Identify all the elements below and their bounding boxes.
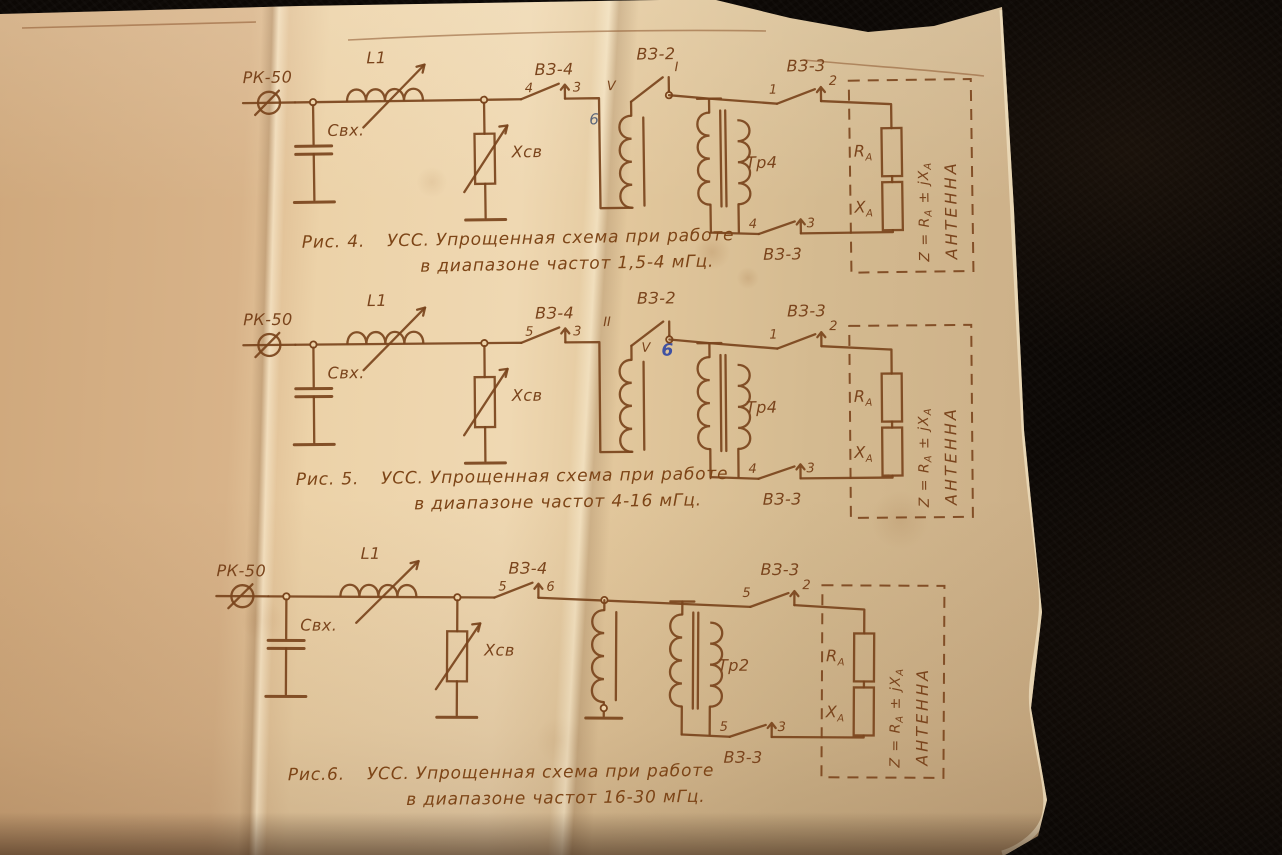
switch-vz2-to: V [641, 341, 651, 356]
inductor-l1: L1 [340, 544, 418, 623]
switch-vz3-top: ВЗ-3 5 2 [742, 560, 811, 607]
switch-vz3-top-label: ВЗ-3 [760, 560, 799, 579]
antenna-impedance-formula: Z = RА ± jХА [916, 162, 935, 263]
antenna-reactance-label: ХА [853, 197, 873, 219]
switch-vz4: ВЗ-4 5 6 [494, 559, 554, 598]
switch-vz3-bottom: 5 3 ВЗ-3 [719, 720, 786, 767]
switch-vz3-top: ВЗ-3 1 2 [769, 301, 838, 349]
switch-vz3-bottom-from: 4 [748, 462, 756, 477]
pencil-note: 6 [589, 110, 599, 128]
caption-fig6: Рис.6.УСС. Упрощенная схема при работе в… [288, 758, 715, 814]
switch-vz3-bottom-label: ВЗ-3 [763, 489, 802, 508]
input-capacitor-label: Свх. [300, 616, 337, 635]
switch-vz3-top-label: ВЗ-3 [786, 56, 825, 76]
caption-text: УСС. Упрощенная схема при работе [367, 761, 714, 785]
switch-vz3-top-from: 5 [742, 586, 750, 601]
caption-fig4: Рис. 4.УСС. Упрощенная схема при работе … [302, 222, 735, 282]
reactance-xsv: Хсв [436, 600, 515, 717]
input-capacitor: Свх. [266, 599, 338, 696]
switch-vz3-top-to: 2 [802, 578, 810, 593]
caption-fig5-line2: в диапазоне частот 4-16 мГц. [414, 487, 729, 517]
switch-vz2: ВЗ-2 II V 6 [603, 288, 677, 361]
antenna-box: RА ХА Z = RА ± jХА АНТЕННА [849, 79, 974, 273]
caption-text: УСС. Упрощенная схема при работе [387, 225, 735, 251]
switch-vz4: ВЗ-4 5 3 [521, 303, 582, 343]
reactance-label: Хсв [511, 386, 543, 405]
caption-text: УСС. Упрощенная схема при работе [381, 464, 728, 489]
rk50-connector: РК-50 [243, 310, 295, 357]
antenna-reactance-label: ХА [825, 702, 845, 724]
inductor-l1: L1 [346, 48, 425, 128]
figure-number: Рис.6. [288, 765, 345, 786]
inductor-label: L1 [367, 291, 387, 310]
connector-label: РК-50 [216, 561, 266, 580]
switch-vz4-label: ВЗ-4 [534, 60, 573, 80]
switch-vz4-to: 6 [546, 580, 554, 595]
switch-vz3-bottom-from: 5 [720, 720, 728, 735]
switch-vz2-from: V [607, 79, 617, 94]
rk50-connector: РК-50 [216, 561, 268, 608]
switch-vz3-bottom-to: 3 [807, 216, 815, 231]
folded-paper-sheet: РК-50 Свх. L1 [0, 0, 1282, 855]
transformer-label: Тр4 [746, 398, 778, 417]
matching-winding [586, 600, 623, 718]
reactance-label: Хсв [483, 640, 515, 659]
reactance-label: Хсв [511, 142, 543, 161]
caption-fig5: Рис. 5.УСС. Упрощенная схема при работе … [296, 461, 729, 519]
figure-number: Рис. 4. [302, 232, 366, 253]
switch-vz3-bottom-to: 3 [778, 720, 786, 735]
antenna-impedance-formula: Z = RА ± jХА [916, 407, 935, 508]
rk50-connector: РК-50 [243, 67, 296, 115]
switch-vz3-bottom: 4 3 ВЗ-3 [749, 216, 816, 264]
photo-of-schematic-page: РК-50 Свх. L1 [0, 0, 1282, 855]
transformer-label: Тр4 [746, 153, 778, 172]
connector-label: РК-50 [243, 310, 293, 329]
matching-winding [619, 346, 644, 452]
matching-winding [619, 102, 644, 208]
antenna-box-label: АНТЕННА [941, 160, 961, 260]
input-capacitor-label: Свх. [327, 120, 364, 140]
switch-vz3-top-to: 2 [829, 319, 837, 334]
switch-vz2-from: II [603, 315, 611, 330]
switch-vz2-to: I [674, 60, 678, 75]
transformer: Тр4 [697, 343, 778, 478]
switch-vz4-label: ВЗ-4 [508, 559, 547, 578]
figure-number: Рис. 5. [296, 469, 360, 490]
antenna-resistance-label: RА [826, 646, 845, 668]
switch-vz3-top: ВЗ-3 1 2 [768, 56, 837, 104]
antenna-reactance-label: ХА [853, 443, 873, 465]
switch-vz3-top-from: 1 [769, 83, 777, 98]
antenna-impedance-formula: Z = RА ± jХА [887, 668, 906, 769]
switch-vz4-to: 3 [573, 324, 581, 339]
switch-vz3-top-from: 1 [769, 328, 777, 343]
switch-vz3-top-to: 2 [829, 74, 837, 89]
switch-vz3-bottom-to: 3 [806, 461, 814, 476]
input-capacitor: Свх. [293, 347, 365, 445]
reactance-xsv: Хсв [463, 346, 543, 464]
connector-label: РК-50 [243, 67, 293, 87]
caption-fig6-line2: в диапазоне частот 16-30 мГц. [406, 784, 715, 813]
antenna-resistance-label: RА [854, 387, 873, 409]
inductor-label: L1 [366, 48, 386, 67]
transformer: Тр2 [670, 601, 750, 734]
switch-vz3-top-label: ВЗ-3 [787, 301, 826, 320]
inductor-label: L1 [361, 544, 381, 563]
switch-vz2-label: ВЗ-2 [637, 288, 676, 307]
antenna-box-label: АНТЕННА [913, 667, 933, 767]
reactance-xsv: Хсв [463, 102, 543, 220]
switch-vz2-label: ВЗ-2 [636, 44, 675, 64]
antenna-box: RА ХА Z = RА ± jХА АНТЕННА [849, 325, 973, 518]
antenna-resistance-label: RА [854, 141, 873, 163]
input-capacitor: Свх. [293, 104, 366, 202]
switch-vz4: ВЗ-4 4 3 [520, 59, 581, 99]
transformer: Тр4 [697, 98, 778, 233]
input-capacitor-label: Свх. [328, 363, 365, 382]
circuit-fig6: РК-50 Свх. L1 [211, 546, 957, 795]
transformer-label: Тр2 [718, 656, 750, 675]
switch-vz3-bottom-from: 4 [749, 217, 757, 232]
caption-fig4-line2: в диапазоне частот 1,5-4 мГц. [420, 248, 735, 279]
switch-vz3-bottom: 4 3 ВЗ-3 [748, 461, 815, 509]
switch-vz3-bottom-label: ВЗ-3 [723, 748, 762, 767]
antenna-box: RА ХА Z = RА ± jХА АНТЕННА [821, 585, 944, 778]
pencil-note: 6 [661, 340, 673, 360]
antenna-box-label: АНТЕННА [941, 406, 961, 506]
switch-vz2: ВЗ-2 V I 6 [588, 44, 679, 128]
switch-vz4-to: 3 [573, 80, 581, 95]
switch-vz3-bottom-label: ВЗ-3 [763, 244, 802, 264]
inductor-l1: L1 [347, 291, 426, 371]
switch-vz4-label: ВЗ-4 [535, 303, 574, 322]
